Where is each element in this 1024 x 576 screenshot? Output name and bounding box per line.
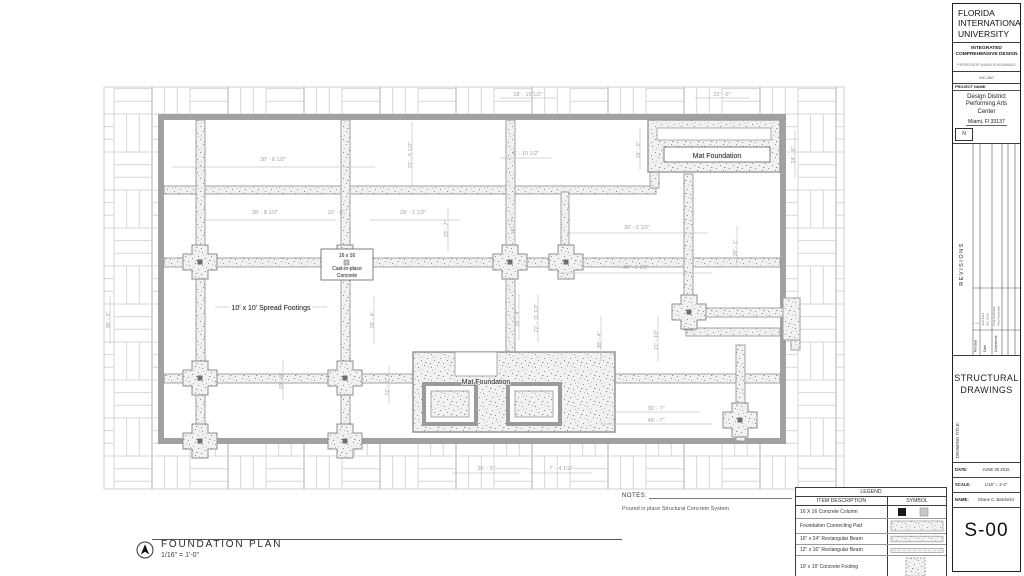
revisions-col-revised: Revised xyxy=(974,340,978,352)
drawing-sheet: 18' - 10 1/2"22' - 6"38' - 8 1/2"21' - 5… xyxy=(0,0,1024,576)
university-name: FLORIDA INTERNATIONAL UNIVERSITY xyxy=(953,4,1020,43)
field-name: NAME: Shane C. Batchelor xyxy=(953,493,1020,508)
drawing-title-label: DRAWING TITLE: xyxy=(955,422,960,458)
plan-label: Concrete xyxy=(337,273,358,279)
dimension-label: 21' - 5 1/2" xyxy=(408,142,414,168)
plan-label: 16 x 16 xyxy=(339,253,356,259)
revisions-title: REVISIONS xyxy=(959,242,965,285)
north-indicator: N xyxy=(955,128,973,141)
course-code: MC-280 xyxy=(953,72,1020,84)
dimension-label: 26' - 4" xyxy=(515,309,521,326)
plan-label: Mat Foundation xyxy=(693,153,742,160)
dimension-label: 30' - 2 1/2" xyxy=(624,225,650,231)
dimension-label: 16' - 7" xyxy=(511,217,517,234)
revisions-block: REVISIONS Revised Date Comments 1 2 JUN … xyxy=(953,144,1020,356)
project-name-line: Performing Arts xyxy=(953,101,1020,109)
dimension-label: 36' - 0" xyxy=(477,466,494,472)
view-title-text: FOUNDATION PLAN xyxy=(161,539,282,550)
revision-entry: JUN 2015 xyxy=(981,312,985,326)
project-name-line: Center xyxy=(953,109,1020,117)
project-name: Design District Performing Arts Center xyxy=(953,94,1020,117)
revisions-table: REVISIONS Revised Date Comments 1 2 JUN … xyxy=(953,144,1020,356)
dimension-label: 22' - 6" xyxy=(713,92,730,98)
legend-row: Foundation Connecting Pad xyxy=(796,519,946,534)
dimension-label: 7' - 4 1/2" xyxy=(549,466,572,472)
mat-foundation-bottom xyxy=(413,352,615,432)
legend-title: LEGEND xyxy=(796,488,946,497)
program-line: COMPREHENSIVE DESIGN xyxy=(954,52,1019,58)
dimension-label: 30' - 4" xyxy=(597,331,603,348)
legend-symbol-footing xyxy=(888,556,946,576)
title-block: FLORIDA INTERNATIONAL UNIVERSITY INTEGRA… xyxy=(952,3,1021,572)
legend-symbol-beam-thin xyxy=(888,546,946,555)
field-scale: SCALE: 1/16" = 1'-0" xyxy=(953,478,1020,493)
dimension-label: 26' - 4" xyxy=(370,311,376,328)
dimension-label: 22' - 11 1/2" xyxy=(534,304,540,333)
dimension-label: 24' - 6" xyxy=(791,146,797,163)
revisions-col-comments: Comments xyxy=(994,335,998,352)
dimension-label: 28' - 8 1/2" xyxy=(252,210,278,216)
dimension-label: 16' - 0" xyxy=(636,141,642,158)
dimension-label: 26' - 1" xyxy=(733,239,739,256)
university-line: INTERNATIONAL xyxy=(958,18,1018,28)
dimension-label: 36' - 5" xyxy=(106,311,112,328)
plan-label: Mat Foundation xyxy=(462,379,511,386)
project-city: Miami, Fl 33137 xyxy=(953,119,1020,125)
column-symbol-in-label xyxy=(344,260,349,265)
university-line: FLORIDA xyxy=(958,8,1018,18)
dimension-label: 22' - 0" xyxy=(385,378,391,395)
dimension-label: 8' - 10 1/2" xyxy=(513,151,539,157)
program-name: INTEGRATED COMPREHENSIVE DESIGN PROFESSO… xyxy=(953,43,1020,71)
revision-entry: Final Submittal xyxy=(997,306,1001,326)
notes-rule xyxy=(649,492,792,499)
view-scale-text: 1/16" = 1'-0" xyxy=(161,552,282,559)
university-line: UNIVERSITY xyxy=(958,29,1018,39)
sheet-number: S-00 xyxy=(953,508,1020,542)
notes-heading: NOTES: xyxy=(622,493,647,499)
legend-row: 16 X 16 Concrete Column xyxy=(796,506,946,519)
professor-name: PROFESSOR NAKIN SUKSAWANG xyxy=(954,63,1019,69)
project-info: PROJECT NAME: Design District Performing… xyxy=(953,84,1020,144)
legend-symbol-pad xyxy=(888,519,946,533)
dimension-label: 39' - 7" xyxy=(647,406,664,412)
plan-label: Cast-in-place xyxy=(332,266,362,272)
view-marker-icon xyxy=(136,541,154,559)
legend-row: 16" x 24" Rectangular Beam xyxy=(796,534,946,545)
notes-block: NOTES: Poured in place Structural Concre… xyxy=(622,492,792,512)
dimension-label: 49' - 7" xyxy=(647,418,664,424)
dimension-label: 40' - 2 1/2" xyxy=(623,265,649,271)
revision-entry: JUL 2015 xyxy=(986,313,990,326)
discipline-section: STRUCTURAL DRAWINGS DRAWING TITLE: xyxy=(953,356,1020,463)
project-name-line: Design District xyxy=(953,94,1020,102)
discipline-title: STRUCTURAL DRAWINGS xyxy=(953,372,1020,396)
revision-entry: Prog Submittal xyxy=(992,306,996,326)
revision-entry: 2 xyxy=(976,322,980,324)
view-title: FOUNDATION PLAN 1/16" = 1'-0" xyxy=(136,539,282,559)
legend-row: 12" x 16" Rectangular Beam xyxy=(796,545,946,556)
dimension-label: 38' - 8 1/2" xyxy=(260,157,286,163)
dimension-label: 18' - 10 1/2" xyxy=(513,92,542,98)
dimension-label: 20' - 7" xyxy=(444,220,450,237)
mat-foundation-top-right xyxy=(648,120,780,172)
notes-body: Poured in place Structural Concrete Syst… xyxy=(622,506,792,512)
revisions-col-date: Date xyxy=(983,345,987,352)
dimension-label: 21' - 10" xyxy=(654,330,660,350)
legend-table: LEGEND ITEM DESCRIPTION SYMBOL 16 X 16 C… xyxy=(795,487,947,576)
legend-row: 10' x 10' Concrete Footing xyxy=(796,556,946,576)
field-date: DATE: JUNE 05 2015 xyxy=(953,463,1020,478)
legend-symbol-beam-wide xyxy=(888,534,946,544)
legend-symbol-column xyxy=(888,506,946,518)
project-name-label: PROJECT NAME: xyxy=(953,84,1020,91)
legend-header: ITEM DESCRIPTION SYMBOL xyxy=(796,497,946,506)
dimension-label: 10' - 0" xyxy=(327,210,344,216)
dimension-label: 29' - 1 1/2" xyxy=(400,210,426,216)
plan-label: 10' x 10' Spread Footings xyxy=(232,305,311,312)
dimension-label: 10' - 0" xyxy=(279,372,285,389)
